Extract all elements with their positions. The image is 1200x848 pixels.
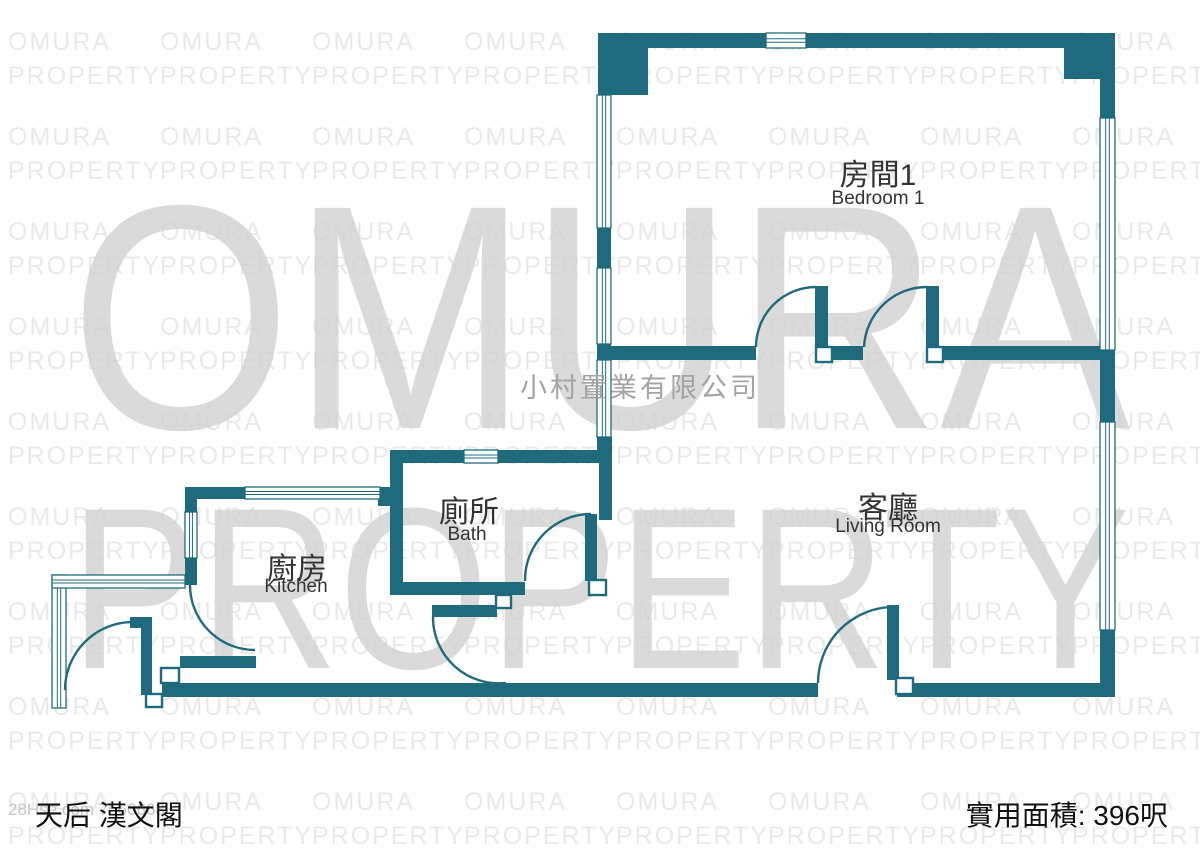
usable-area-label: 實用面積: 396呎 bbox=[966, 794, 1168, 834]
watermark-company-name: 小村置業有限公司 bbox=[520, 366, 760, 405]
watermark-tile: OMURAPROPERTY bbox=[312, 788, 465, 848]
window bbox=[1100, 422, 1115, 630]
watermark-tile: OMURAPROPERTY bbox=[768, 788, 921, 848]
room-label-kitchen-en: Kitchen bbox=[264, 576, 327, 598]
room-label-bath-en: Bath bbox=[447, 524, 486, 546]
watermark-tile: OMURAPROPERTY bbox=[160, 788, 313, 848]
wall-segment bbox=[598, 33, 1115, 48]
door-leaf bbox=[815, 286, 828, 347]
door-jamb bbox=[927, 347, 943, 362]
door-jamb bbox=[816, 347, 832, 362]
watermark-tile: OMURAPROPERTY bbox=[616, 788, 769, 848]
wall-segment bbox=[390, 450, 612, 463]
window bbox=[1100, 118, 1115, 350]
wall-segment bbox=[897, 683, 1100, 697]
wall-segment bbox=[162, 683, 818, 697]
door-jamb bbox=[589, 580, 606, 595]
window bbox=[766, 33, 806, 48]
wall-segment bbox=[1100, 630, 1115, 697]
door-jamb bbox=[161, 668, 179, 683]
door-leaf bbox=[887, 605, 899, 680]
wall-segment bbox=[390, 450, 403, 595]
wall-segment bbox=[597, 228, 611, 268]
window bbox=[185, 512, 197, 558]
door-leaf bbox=[926, 286, 939, 347]
wall-segment bbox=[185, 487, 197, 512]
wall-segment bbox=[943, 346, 1100, 360]
door-leaf bbox=[432, 605, 497, 617]
window bbox=[464, 450, 498, 463]
room-label-bedroom1-en: Bedroom 1 bbox=[832, 188, 925, 210]
wall-segment bbox=[598, 33, 648, 95]
watermark-tile: OMURAPROPERTY bbox=[8, 28, 161, 90]
window bbox=[597, 95, 611, 228]
watermark-tile: OMURAPROPERTY bbox=[464, 28, 617, 90]
floorplan-page: OMURAPROPERTYOMURAPROPERTYOMURAPROPERTYO… bbox=[0, 0, 1200, 848]
wall-segment bbox=[141, 617, 152, 695]
door-jamb bbox=[496, 595, 511, 608]
floorplan-svg: OMURAPROPERTYOMURAPROPERTYOMURAPROPERTYO… bbox=[0, 0, 1200, 848]
wall-segment bbox=[1100, 33, 1115, 118]
wall-segment bbox=[832, 346, 863, 360]
window bbox=[597, 268, 611, 344]
door-leaf bbox=[130, 617, 151, 628]
room-label-living-en: Living Room bbox=[835, 516, 941, 538]
window bbox=[245, 487, 380, 499]
wall-segment bbox=[600, 346, 756, 360]
wall-segment bbox=[185, 558, 197, 585]
door-leaf bbox=[585, 514, 597, 581]
watermark-tile: OMURAPROPERTY bbox=[312, 28, 465, 90]
door-jamb bbox=[146, 694, 162, 707]
watermark-tile: OMURAPROPERTY bbox=[464, 788, 617, 848]
watermark-tile: OMURAPROPERTY bbox=[160, 28, 313, 90]
door-jamb bbox=[896, 678, 913, 694]
wall-segment bbox=[599, 440, 612, 520]
window bbox=[52, 575, 185, 588]
door-leaf bbox=[180, 656, 256, 668]
estate-name: 天后 漢文閣 bbox=[35, 794, 183, 834]
wall-segment bbox=[1100, 350, 1115, 422]
wall-segment bbox=[390, 582, 525, 595]
